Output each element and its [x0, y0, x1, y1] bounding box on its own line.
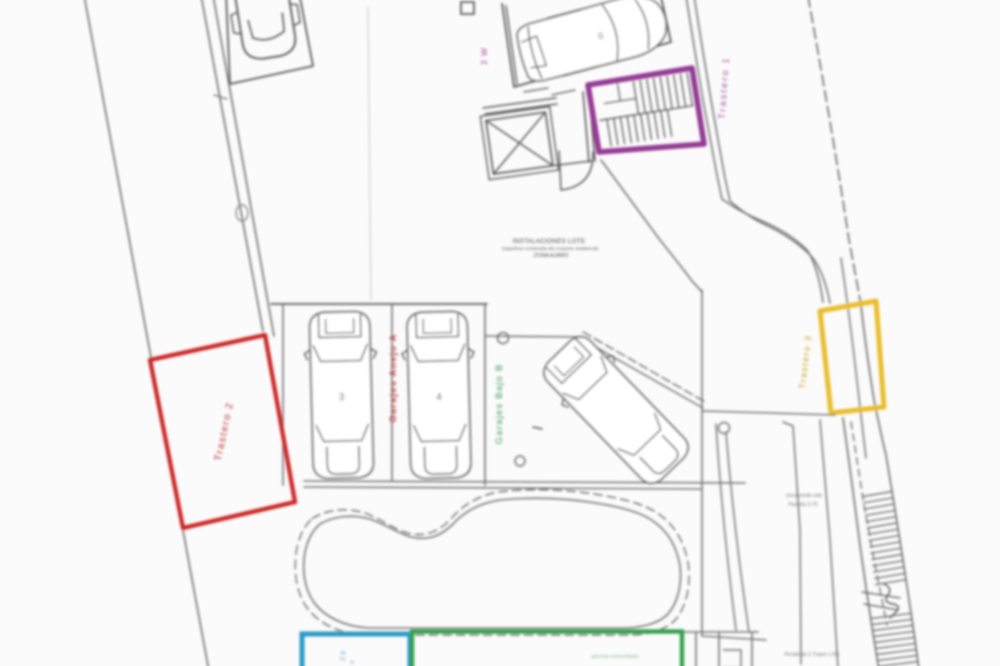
svg-text:Parcela 3.75: Parcela 3.75 — [788, 502, 817, 508]
svg-text:zona verde sxle: zona verde sxle — [786, 493, 822, 499]
svg-text:Garajes Anejo A: Garajes Anejo A — [388, 333, 399, 422]
svg-text:3: 3 — [339, 392, 345, 403]
svg-text:ZONA AJARD: ZONA AJARD — [534, 253, 569, 259]
svg-text:4: 4 — [436, 392, 442, 403]
svg-text:piscina comunitaria: piscina comunitaria — [591, 654, 639, 660]
svg-text:INSTALACIONES LOTE: INSTALACIONES LOTE — [513, 238, 586, 245]
svg-text:3 W: 3 W — [479, 47, 489, 65]
svg-text:Pendiente 2 Tramo 1.5%: Pendiente 2 Tramo 1.5% — [784, 652, 840, 658]
svg-text:2.9: 2.9 — [340, 650, 348, 661]
svg-text:Superficie construida del conj: Superficie construida del conjunto resid… — [502, 246, 598, 252]
svg-text:Garajes Bajo B: Garajes Bajo B — [494, 364, 505, 445]
